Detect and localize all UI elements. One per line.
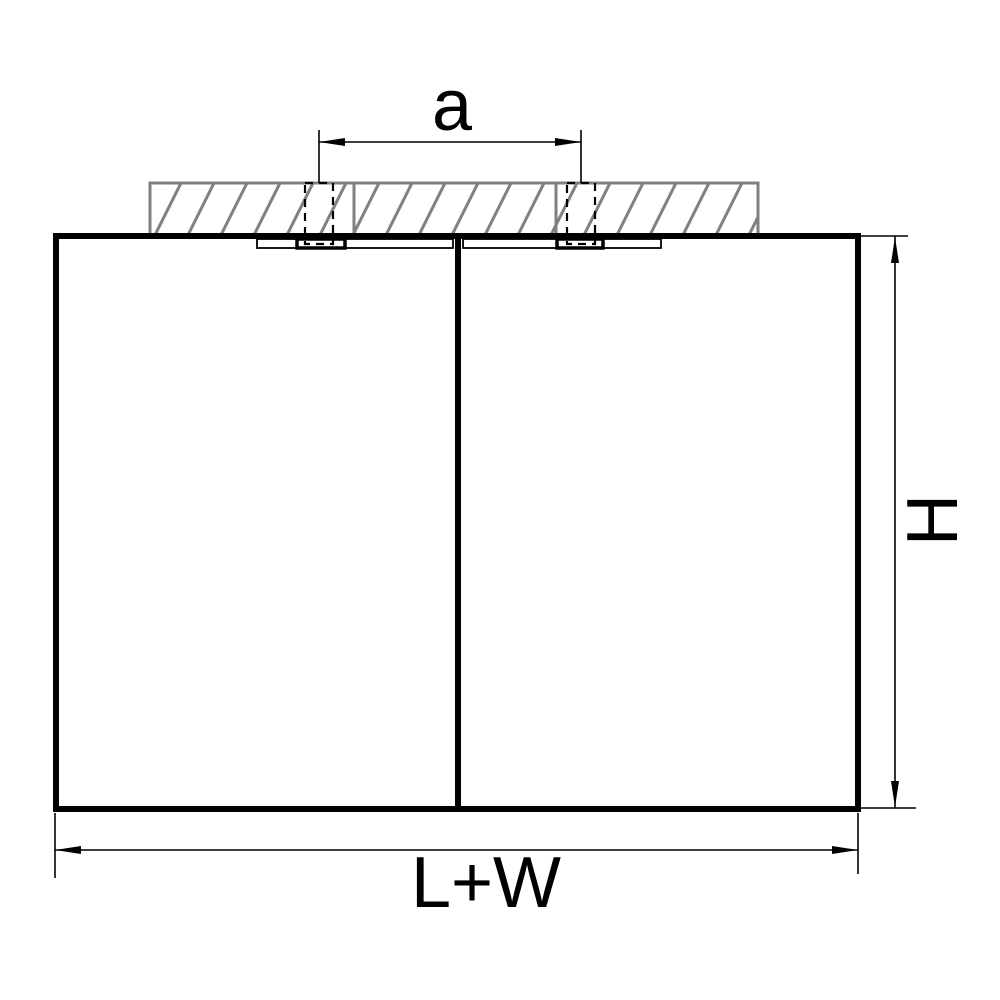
dim-a-label: a: [432, 66, 473, 146]
dim-lw-label: L+W: [411, 843, 561, 923]
drawing-canvas: a H L+W: [0, 0, 1000, 1000]
mounting-plate-hatch: [150, 183, 758, 237]
dimension-drawing: a H L+W: [0, 0, 1000, 1000]
dim-h-label: H: [893, 494, 973, 546]
clip-rail-left: [257, 239, 453, 248]
mounting-plate: [150, 183, 758, 237]
